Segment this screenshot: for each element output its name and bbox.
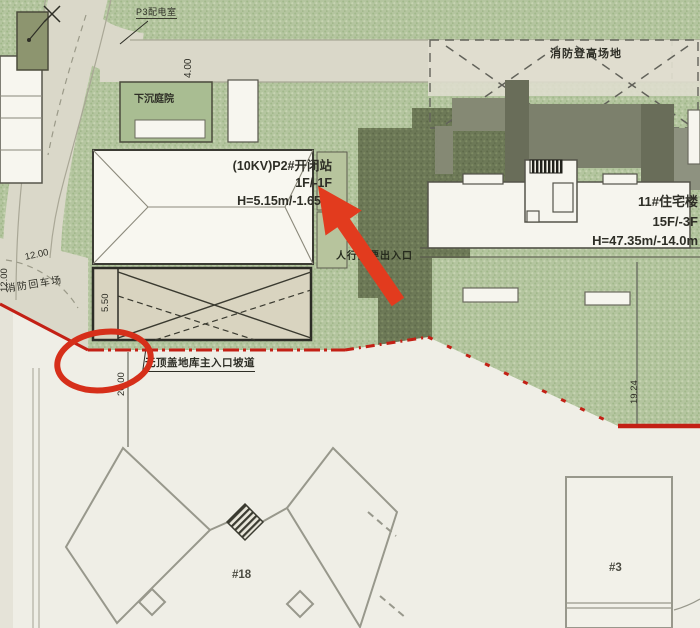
red-arrow [318, 186, 404, 306]
markup-layer [0, 0, 700, 628]
site-plan: P3配电室 4.00 消防登高场地 下沉庭院 (10KV)P2#开闭站 1F/-… [0, 0, 700, 628]
red-circle [53, 326, 154, 397]
